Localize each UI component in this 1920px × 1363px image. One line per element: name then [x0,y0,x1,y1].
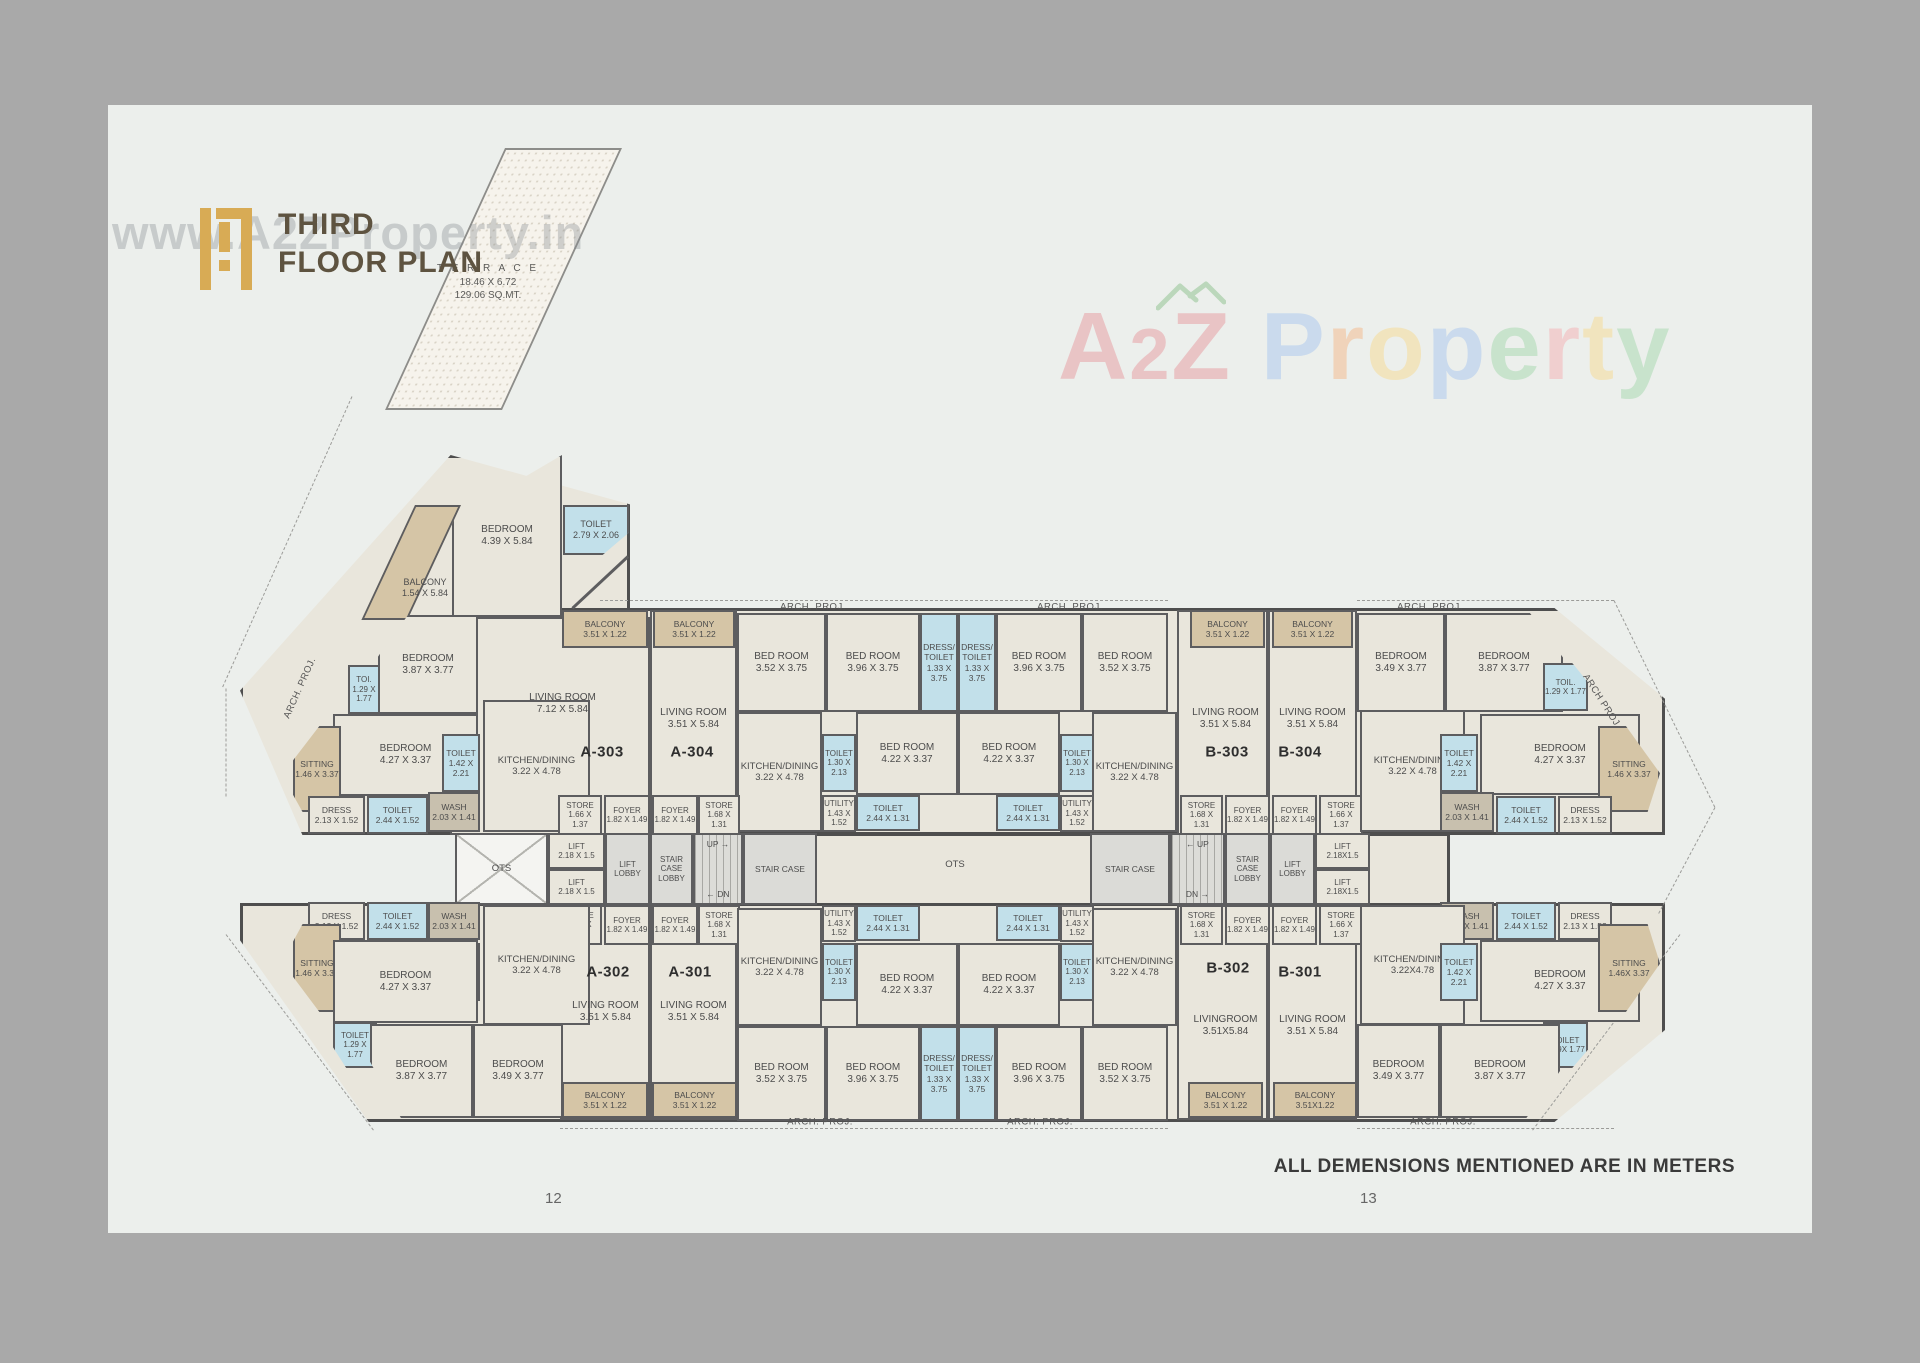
room-name: BED ROOM [1098,1062,1152,1074]
room-dimensions: 3.51 X 1.22 [673,1100,716,1110]
room-dimensions: 1.43 X 1.52 [824,809,854,828]
room-lift: LIFT2.18 X 1.5 [548,869,605,905]
room-name: BALCONY [1292,619,1333,629]
room-kitchen-dining: KITCHEN/DINING3.22 X 4.78 [737,908,822,1026]
room-name: DRESS [1570,911,1599,921]
room-bed-room: BED ROOM4.22 X 3.37 [856,943,958,1026]
room-name: TOILET [1063,749,1091,758]
room-store: STORE1.68 X 1.31 [1180,905,1223,945]
room-dimensions: 1.42 X 2.21 [1442,758,1476,778]
arch-projection-label: ARCH. PROJ. [1397,602,1463,613]
room-dimensions: 1.43 X 1.52 [824,919,854,938]
room-dimensions: 1.43 X 1.52 [1062,809,1092,828]
brand-letter: r [1327,293,1366,400]
room-dimensions: 1.42 X 2.21 [1442,967,1476,987]
room-dimensions: 3.22 X 4.78 [1388,766,1437,777]
room-dimensions: 1.46 X 3.37 [1607,769,1650,779]
room-stair-case-lobby: STAIR CASE LOBBY [1225,833,1270,905]
room-name: TOI. [356,675,371,684]
room-name: TOILET [341,1031,369,1040]
room-utility: UTILITY1.43 X 1.52 [822,795,856,832]
brand-letter: e [1487,293,1542,400]
room-bed-room: BED ROOM3.96 X 3.75 [826,613,920,712]
room-name: BED ROOM [754,1062,808,1074]
room-toilet: TOILET1.42 X 2.21 [1440,734,1478,792]
room-dimensions: 3.51 X 1.22 [1291,629,1334,639]
room-dimensions: 2.13 X 1.52 [1563,815,1606,825]
room-dimensions: 3.22 X 4.78 [755,772,804,783]
room-toilet: TOILET2.44 X 1.52 [1496,902,1556,940]
room-toilet: TOILET1.42 X 2.21 [442,734,480,792]
room-bed-room: BED ROOM3.52 X 3.75 [1082,1026,1168,1121]
room-dimensions: 4.22 X 3.37 [881,985,932,997]
unit-label-b-303: B-303 [1205,744,1248,761]
room-living-room: LIVING ROOM7.12 X 5.84 [515,688,610,720]
room-name: BEDROOM [1478,651,1530,663]
room-kitchen-dining: KITCHEN/DINING3.22 X 4.78 [1092,908,1177,1026]
room-dimensions: 3.87 X 3.77 [402,665,453,677]
room-name: LIVING ROOM [1279,1014,1346,1026]
room-dimensions: 2.18X1.5 [1326,851,1358,860]
room-toilet: TOILET1.30 X 2.13 [822,734,856,792]
dimensions-note: ALL DEMENSIONS MENTIONED ARE IN METERS [1274,1156,1735,1178]
room-stair-case: STAIR CASE [743,833,817,905]
room-name: TOILET [825,958,853,967]
room-dimensions: 1.30 X 2.13 [1062,758,1092,777]
room-dimensions: 3.51 X 1.22 [583,629,626,639]
room-toilet: TOILET2.44 X 1.31 [996,905,1060,941]
room-name: TOILET [1444,748,1474,758]
room-name: BALCONY [1295,1090,1336,1100]
room-utility: UTILITY1.43 X 1.52 [1060,905,1094,942]
room-toilet: TOILET1.42 X 2.21 [1440,943,1478,1001]
room-wash: WASH2.03 X 1.41 [428,902,480,940]
room-dimensions: 4.39 X 5.84 [481,536,532,548]
room-name: BEDROOM [1375,651,1427,663]
room-name: UTILITY [1062,909,1092,918]
room-dimensions: 3.51X5.84 [1203,1026,1249,1038]
room-name: STORE [1327,801,1354,810]
a2z-property-logo: A2Z Property [1058,292,1671,402]
room-name: FOYER [1281,916,1309,925]
brand-letter: p [1427,293,1488,400]
room-name: TOILET [1444,957,1474,967]
room-name: BEDROOM [481,524,533,536]
room-name: BALCONY [585,1090,626,1100]
room-lift-lobby: LIFT LOBBY [1270,833,1315,905]
room-balcony: BALCONY3.51 X 1.22 [653,610,735,648]
room-living-room: LIVING ROOM3.51 X 5.84 [1270,703,1355,735]
room-foyer: FOYER1.82 X 1.49 [1225,795,1270,835]
room-dimensions: 3.51 X 5.84 [1287,719,1338,731]
room-dimensions: 1.66 X 1.37 [1321,920,1361,939]
room-lift-lobby: LIFT LOBBY [605,833,650,905]
room-dimensions: 3.51 X 1.22 [1204,1100,1247,1110]
room-dimensions: 1.33 X 3.75 [960,663,994,683]
room-dimensions: 3.51 X 1.22 [583,1100,626,1110]
room-name: DRESS [322,805,351,815]
room-dimensions: 2.79 X 2.06 [573,530,619,541]
room-livingroom: LIVINGROOM3.51X5.84 [1183,1010,1268,1042]
room-utility: UTILITY1.43 X 1.52 [1060,795,1094,832]
room-dimensions: 4.22 X 3.37 [983,754,1034,766]
room-dimensions: 1.66 X 1.37 [1321,810,1361,829]
room-dress: DRESS2.13 X 1.52 [1558,796,1612,834]
room-dimensions: 2.18X1.5 [1326,887,1358,896]
room-lift: LIFT2.18X1.5 [1315,869,1370,905]
room-dimensions: 3.51 X 5.84 [668,719,719,731]
room-dimensions: 1.82 X 1.49 [655,815,696,824]
room-dress-toilet: DRESS/ TOILET1.33 X 3.75 [958,613,996,712]
room-name: BALCONY [585,619,626,629]
room-name: STORE [1188,801,1215,810]
room-name: BED ROOM [846,651,900,663]
room-dimensions: 1.82 X 1.49 [655,925,696,934]
room-name: BEDROOM [396,1059,448,1071]
room-name: STORE [705,911,732,920]
unit-label-a-302: A-302 [586,964,629,981]
room-dimensions: 1.82 X 1.49 [1227,815,1268,824]
room-name: DRESS/ TOILET [960,1053,994,1073]
room-bedroom: BEDROOM3.49 X 3.77 [473,1024,563,1118]
room-store: STORE1.68 X 1.31 [698,905,740,945]
room-dimensions: 1.46 X 3.37 [295,769,338,779]
room-dimensions: 1.66 X 1.37 [560,810,600,829]
room-name: BALCONY [403,577,446,588]
page-title: THIRD FLOOR PLAN [278,206,483,281]
room-balcony: BALCONY3.51 X 1.22 [562,610,648,648]
room-kitchen-dining: KITCHEN/DINING3.22 X 4.78 [737,712,822,832]
room-name: UTILITY [824,909,854,918]
room-store: STORE1.66 X 1.37 [558,795,602,835]
room-dimensions: 2.44 X 1.31 [866,813,909,823]
room-bedroom: BEDROOM4.27 X 3.37 [333,940,478,1023]
room-name: BEDROOM [1373,1059,1425,1071]
room-foyer: FOYER1.82 X 1.49 [1272,795,1317,835]
room-dimensions: 4.22 X 3.37 [983,985,1034,997]
room-name: BEDROOM [402,653,454,665]
room-foyer: FOYER1.82 X 1.49 [604,795,650,835]
page-number-left: 12 [545,1190,562,1207]
room-balcony: BALCONY3.51 X 1.22 [1272,610,1353,648]
title-line-1: THIRD [278,206,483,244]
brand-letter: t [1582,293,1616,400]
room-name: BEDROOM [1534,743,1586,755]
room-dimensions: 3.51 X 5.84 [580,1012,631,1024]
unit-label-b-302: B-302 [1206,960,1249,977]
room-bed-room: BED ROOM4.22 X 3.37 [958,943,1060,1026]
room-wash: WASH2.03 X 1.41 [1440,792,1494,832]
room-name: BEDROOM [380,970,432,982]
room-store: STORE1.68 X 1.31 [698,795,740,835]
room-name: LIFT [1334,842,1350,851]
page-number-right: 13 [1360,1190,1377,1207]
room-dimensions: 1.30 X 2.13 [824,758,854,777]
room-stair-case-lobby: STAIR CASE LOBBY [650,833,693,905]
room-dimensions: 3.52 X 3.75 [1099,1074,1150,1086]
room-name: LIFT [568,842,584,851]
room-dimensions: 4.27 X 3.37 [380,755,431,767]
room-foyer: FOYER1.82 X 1.49 [1272,905,1317,945]
room-dimensions: 3.22 X 4.78 [512,766,561,777]
room-balcony: BALCONY3.51 X 1.22 [562,1082,648,1118]
room-living-room: LIVING ROOM3.51 X 5.84 [652,996,735,1028]
room-foyer: FOYER1.82 X 1.49 [652,905,698,945]
room-toilet: TOILET1.30 X 2.13 [1060,734,1094,792]
room-dimensions: 1.33 X 3.75 [922,1074,956,1094]
room-name: LIFT [1334,878,1350,887]
unit-label-b-301: B-301 [1278,964,1321,981]
room-balcony: BALCONY3.51 X 1.22 [1188,1082,1263,1118]
unit-label-a-304: A-304 [670,744,713,761]
room-name: BED ROOM [982,742,1036,754]
room-name: SITTING [1612,958,1646,968]
room-name: SITTING [300,958,334,968]
room-bedroom: BEDROOM3.49 X 3.77 [1357,1024,1440,1118]
room-dimensions: 2.44 X 1.52 [376,921,419,931]
room-dimensions: 2.44 X 1.31 [866,923,909,933]
room-dimensions: 3.51 X 5.84 [1287,1026,1338,1038]
room-name: LIVING ROOM [660,707,727,719]
room-name: TOILET [1063,958,1091,967]
room-toilet: TOILET2.44 X 1.52 [367,796,428,834]
room-dimensions: 1.43 X 1.52 [1062,919,1092,938]
terrace-area-value: 129.06 SQ.MT. [432,289,544,303]
arch-projection-outline [1357,1128,1614,1129]
room-ots: OTS [455,833,548,905]
room-dress: DRESS2.13 X 1.52 [308,796,365,834]
room-name: BED ROOM [880,973,934,985]
room-dimensions: 3.52 X 3.75 [756,1074,807,1086]
room-dimensions: 3.22 X 4.78 [755,967,804,978]
room-dimensions: 3.22X4.78 [1391,965,1434,976]
room-name: TOILET [383,805,413,815]
room-lift: LIFT2.18X1.5 [1315,833,1370,869]
room-name: FOYER [613,916,641,925]
room-dimensions: 2.03 X 1.41 [432,921,475,931]
room-dimensions: 3.96 X 3.75 [847,663,898,675]
room-name: FOYER [661,916,689,925]
room-name: DRESS [322,911,351,921]
room-name: OTS [945,859,965,870]
room-dimensions: 4.27 X 3.37 [1534,981,1585,993]
room-dimensions: 1.68 X 1.31 [1182,920,1221,939]
unit-label-a-303: A-303 [580,744,623,761]
room-name: TOILET [1013,803,1043,813]
room-dimensions: 3.87 X 3.77 [1478,663,1529,675]
room-lift: LIFT2.18 X 1.5 [548,833,605,869]
room-toilet: TOILET2.44 X 1.31 [856,795,920,831]
room-dimensions: 3.96 X 3.75 [847,1074,898,1086]
room-name: STORE [1327,911,1354,920]
arch-projection-outline [1357,600,1614,601]
room-dimensions: 3.51 X 5.84 [668,1012,719,1024]
room-dimensions: 1.82 X 1.49 [1274,815,1315,824]
brand-letter [1232,293,1261,400]
room-name: LIVING ROOM [1192,707,1259,719]
room-bedroom: BEDROOM3.49 X 3.77 [1357,613,1445,712]
room-dimensions: 3.49 X 3.77 [492,1071,543,1083]
room-dimensions: 1.82 X 1.49 [607,815,648,824]
room-dimensions: 1.30 X 2.13 [824,967,854,986]
brand-letter: o [1366,293,1427,400]
room-name: BEDROOM [492,1059,544,1071]
room-toilet: TOILET2.44 X 1.52 [367,902,428,940]
room-foyer: FOYER1.82 X 1.49 [604,905,650,945]
room-name: TOILET [580,519,611,530]
room-name: SITTING [1612,759,1646,769]
room-dimensions: 1.82 X 1.49 [1227,925,1268,934]
room-toi: TOI.1.29 X 1.77 [348,665,380,714]
room-dimensions: 2.03 X 1.41 [1445,812,1488,822]
room-dimensions: 3.96 X 3.75 [1013,1074,1064,1086]
room-stair-case: STAIR CASE [1090,833,1170,905]
room-balcony: BALCONY3.51 X 1.22 [652,1082,737,1118]
room-dimensions: 2.44 X 1.52 [1504,921,1547,931]
room-name: KITCHEN/DINING [1096,956,1174,967]
room-dimensions: 3.52 X 3.75 [756,663,807,675]
stair-down-label: DN → [1172,889,1223,899]
room-name: BALCONY [674,619,715,629]
room-name: DRESS/ TOILET [922,642,956,662]
room-name: TOILET [1511,805,1541,815]
room-name: WASH [1454,802,1479,812]
room-name: TOILET [1013,913,1043,923]
arch-projection-label: ARCH. PROJ. [1410,1117,1476,1128]
room-balcony: BALCONY3.51X1.22 [1273,1082,1357,1118]
room-name: DRESS/ TOILET [922,1053,956,1073]
room-name: BED ROOM [1012,1062,1066,1074]
room-living-room: LIVING ROOM3.51 X 5.84 [1183,703,1268,735]
room-toilet: TOILET2.44 X 1.52 [1496,796,1556,834]
room-dimensions: 1.46X 3.37 [1608,968,1649,978]
room-name: BALCONY [674,1090,715,1100]
room-wash: WASH2.03 X 1.41 [428,792,480,832]
room-dimensions: 3.22 X 4.78 [1110,967,1159,978]
room-living-room: LIVING ROOM3.51 X 5.84 [1270,1010,1355,1042]
room-dimensions: 3.51 X 1.22 [1206,629,1249,639]
room-dimensions: 2.44 X 1.52 [376,815,419,825]
room-dimensions: 1.68 X 1.31 [700,920,738,939]
room-name: TOILET [873,803,903,813]
room-name: BEDROOM [380,743,432,755]
room-name: BED ROOM [1098,651,1152,663]
room-dimensions: 2.03 X 1.41 [432,812,475,822]
room-bed-room: BED ROOM3.52 X 3.75 [737,613,826,712]
room-name: TOILET [383,911,413,921]
room-dimensions: 3.87 X 3.77 [1474,1071,1525,1083]
room-dimensions: 3.49 X 3.77 [1373,1071,1424,1083]
room-name: FOYER [1281,806,1309,815]
room-foyer: FOYER1.82 X 1.49 [1225,905,1270,945]
room-name: BALCONY [1205,1090,1246,1100]
room-dimensions: 1.82 X 1.49 [607,925,648,934]
room-name: LIFT [568,878,584,887]
room-name: BALCONY [1207,619,1248,629]
room-dimensions: 3.51 X 5.84 [1200,719,1251,731]
room-dimensions: 1.33 X 3.75 [922,663,956,683]
room-dimensions: 3.96 X 3.75 [1013,663,1064,675]
room-dimensions: 3.51 X 1.22 [672,629,715,639]
room-name: FOYER [1234,916,1262,925]
room-utility: UTILITY1.43 X 1.52 [822,905,856,942]
room-name: STAIR CASE LOBBY [652,855,691,883]
room-dimensions: 2.44 X 1.31 [1006,813,1049,823]
room-dimensions: 2.44 X 1.52 [1504,815,1547,825]
room-toilet: TOILET2.44 X 1.31 [996,795,1060,831]
room-dimensions: 3.22 X 4.78 [512,965,561,976]
room-name: TOILET [446,748,476,758]
brand-letters: A2Z Property [1058,293,1671,400]
room-balcony: BALCONY3.51 X 1.22 [1190,610,1265,648]
room-name: KITCHEN/DINING [741,761,819,772]
room-name: OTS [492,863,512,874]
room-dimensions: 1.68 X 1.31 [700,810,738,829]
room-toilet: TOILET2.44 X 1.31 [856,905,920,941]
room-store: STORE1.68 X 1.31 [1180,795,1223,835]
room-dimensions: 3.52 X 3.75 [1099,663,1150,675]
arch-projection-label: ARCH. PROJ. [1007,1117,1073,1128]
room-bed-room: BED ROOM3.96 X 3.75 [996,613,1082,712]
arch-projection-label: ARCH. PROJ. [1037,602,1103,613]
room-living-room: LIVING ROOM3.51 X 5.84 [652,703,735,735]
room-living-room: LIVING ROOM3.51 X 5.84 [563,996,648,1028]
room-name: LIVINGROOM [1194,1014,1258,1026]
room-bed-room: BED ROOM3.52 X 3.75 [737,1026,826,1121]
room-name: KITCHEN/DINING [1096,761,1174,772]
room-balcony: BALCONY1.54 X 5.84 [385,572,465,604]
room-dimensions: 1.29 X 1.77 [1545,687,1586,696]
room-name: BED ROOM [846,1062,900,1074]
builder-logo-icon [200,208,252,290]
brochure-page: www.A2ZProperty.in THIRD FLOOR PLAN A2Z … [0,0,1920,1363]
room-name: STAIR CASE [1105,864,1155,874]
room-name: KITCHEN/DINING [741,956,819,967]
brand-letter: y [1616,293,1671,400]
roof-icon [1156,280,1226,314]
room-name: BED ROOM [1012,651,1066,663]
room-name: LIFT LOBBY [1272,860,1313,879]
arch-projection-label: ARCH. PROJ. [787,1117,853,1128]
room-dimensions: 2.18 X 1.5 [558,887,594,896]
room-name: TOILET [873,913,903,923]
room-dimensions: 1.30 X 2.13 [1062,967,1092,986]
room-dimensions: 1.82 X 1.49 [1274,925,1315,934]
room-name: LIVING ROOM [660,1000,727,1012]
brand-letter: r [1543,293,1582,400]
brand-letter: 2 [1129,315,1171,395]
room-dimensions: 1.33 X 3.75 [960,1074,994,1094]
room-dimensions: 3.22 X 4.78 [1110,772,1159,783]
brand-letter: P [1261,293,1327,400]
room-bed-room: BED ROOM3.52 X 3.75 [1082,613,1168,712]
room-dimensions: 4.22 X 3.37 [881,754,932,766]
room-name: DRESS/ TOILET [960,642,994,662]
room-dimensions: 2.13 X 1.52 [315,815,358,825]
room-name: LIVING ROOM [1279,707,1346,719]
room-dimensions: 7.12 X 5.84 [537,704,588,716]
room-name: TOILET [825,749,853,758]
stair-up-label: ← UP [1172,839,1223,849]
room-name: BED ROOM [880,742,934,754]
room-dimensions: 1.42 X 2.21 [444,758,478,778]
room-kitchen-dining: KITCHEN/DINING3.22 X 4.78 [1092,712,1177,832]
arch-projection-outline [226,689,227,797]
room-name: LIVING ROOM [529,692,596,704]
room-name: UTILITY [1062,799,1092,808]
room-dimensions: 3.49 X 3.77 [1375,663,1426,675]
room-name: BEDROOM [1474,1059,1526,1071]
